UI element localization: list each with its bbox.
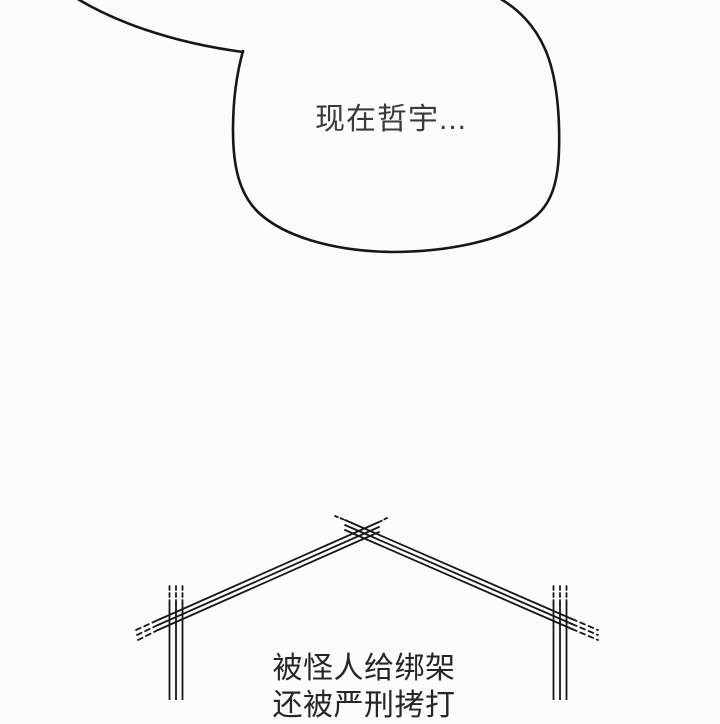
webtoon-page: { "bubble": { "text": "现在哲宇..." }, "narr… [0, 0, 720, 700]
overlapping-bubble-edge [76, 0, 243, 52]
narration-text: 被怪人给绑架 还被严刑拷打 [273, 650, 456, 724]
comic-panel: 现在哲宇... 被怪人给绑架 还被严刑拷打 [0, 0, 720, 700]
house-post-left [170, 586, 183, 700]
narration-line-2: 还被严刑拷打 [273, 687, 456, 724]
narration-line-1: 被怪人给绑架 [273, 650, 456, 687]
house-post-right [554, 586, 567, 700]
speech-bubble-text: 现在哲宇... [315, 104, 467, 136]
house-roof-left-slope [136, 517, 389, 640]
